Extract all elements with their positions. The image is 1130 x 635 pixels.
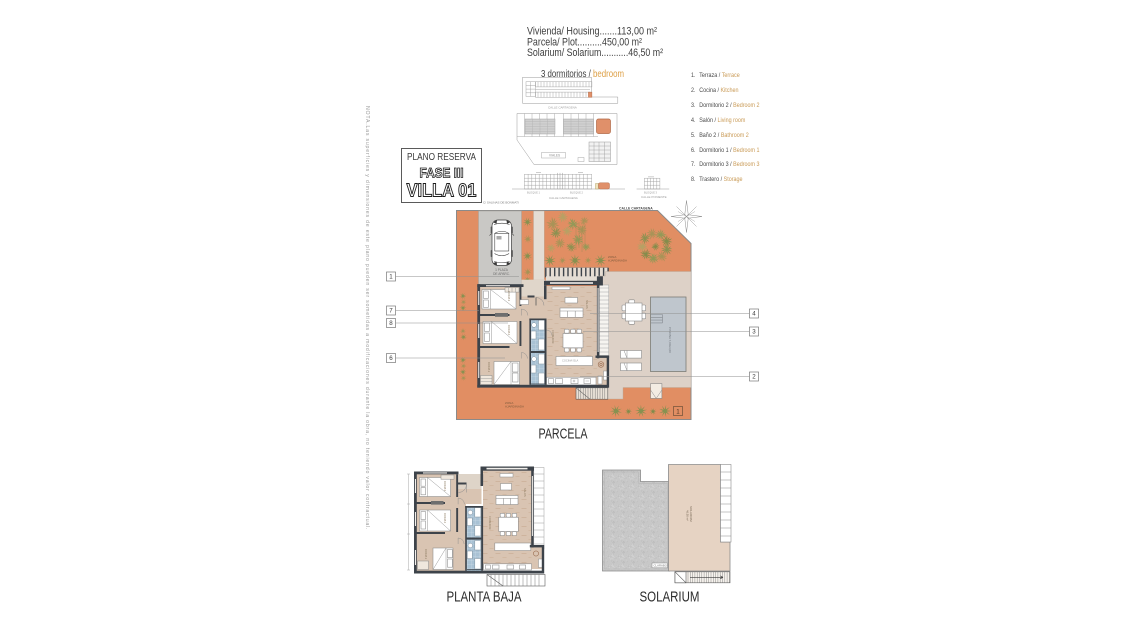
svg-text:VILLA 01: VILLA 01 (407, 180, 477, 201)
svg-text:Cocina / Kitchen: Cocina / Kitchen (699, 88, 738, 95)
svg-text:7.: 7. (691, 162, 696, 169)
svg-text:C/ SALINAS DE BONMATI: C/ SALINAS DE BONMATI (483, 201, 519, 205)
svg-text:1: 1 (389, 274, 393, 281)
svg-text:3.: 3. (691, 103, 696, 110)
svg-text:DE APARC.: DE APARC. (493, 272, 510, 276)
svg-text:2: 2 (752, 374, 756, 381)
svg-text:DORM.3: DORM.3 (443, 481, 447, 492)
svg-text:PLANO RESERVA: PLANO RESERVA (407, 152, 476, 163)
svg-text:BLOQUE 3: BLOQUE 3 (644, 191, 658, 195)
svg-text:6.: 6. (691, 148, 696, 155)
svg-text:CALLE CARTAGENA: CALLE CARTAGENA (619, 207, 653, 211)
svg-text:CALLE CARTAGENA: CALLE CARTAGENA (549, 196, 578, 200)
svg-text:Dormitorio 3 / Bedroom 3: Dormitorio 3 / Bedroom 3 (699, 162, 760, 169)
svg-text:Trastero / Storage: Trastero / Storage (699, 177, 743, 184)
svg-text:PISCINA 7,00x3,00: PISCINA 7,00x3,00 (668, 327, 672, 353)
svg-text:46,50 m²: 46,50 m² (686, 510, 690, 521)
svg-text:4: 4 (752, 311, 756, 318)
svg-text:BLOQUE 1: BLOQUE 1 (527, 191, 541, 195)
svg-text:6: 6 (389, 355, 393, 362)
svg-text:3: 3 (752, 329, 756, 336)
svg-text:Salón / Living room: Salón / Living room (699, 118, 745, 125)
svg-text:SOLARIUM: SOLARIUM (689, 506, 693, 522)
svg-text:7: 7 (389, 308, 393, 315)
svg-text:NOTA.Las superficies y dimensi: NOTA.Las superficies y dimensiones de es… (364, 106, 370, 530)
svg-text:VIALES: VIALES (549, 154, 560, 158)
svg-text:COMEDOR: COMEDOR (488, 516, 492, 530)
svg-text:Dormitorio 2 / Bedroom 2: Dormitorio 2 / Bedroom 2 (699, 103, 760, 110)
svg-text:DORM.2: DORM.2 (443, 513, 447, 524)
svg-text:PLANTA BAJA: PLANTA BAJA (447, 590, 522, 606)
svg-text:3 dormitorios / bedroom: 3 dormitorios / bedroom (541, 68, 624, 80)
svg-text:Baño 2 / Bathroom 2: Baño 2 / Bathroom 2 (699, 133, 749, 140)
svg-text:AJARDINADA: AJARDINADA (608, 259, 627, 263)
svg-text:8: 8 (389, 320, 393, 327)
svg-text:SOLARIUM: SOLARIUM (640, 590, 700, 606)
svg-text:COCINA ISLA: COCINA ISLA (562, 359, 579, 363)
svg-text:CALLE CARTAGENA: CALLE CARTAGENA (548, 106, 577, 110)
svg-text:COMEDOR: COMEDOR (551, 330, 555, 344)
svg-text:Terraza / Terrace: Terraza / Terrace (699, 73, 740, 80)
svg-text:CLARABOYA: CLARABOYA (654, 564, 671, 568)
svg-text:PARCELA: PARCELA (539, 427, 588, 443)
svg-text:AJARDINADA: AJARDINADA (505, 405, 524, 409)
svg-text:DORM.3: DORM.3 (507, 291, 511, 302)
svg-text:FASE III: FASE III (420, 166, 464, 181)
svg-text:DORM.2: DORM.2 (507, 325, 511, 336)
svg-text:BLOQUE 2: BLOQUE 2 (570, 191, 584, 195)
svg-text:SALON: SALON (523, 488, 527, 497)
svg-text:CALLE PONIENTE: CALLE PONIENTE (641, 195, 667, 199)
svg-text:2.: 2. (691, 88, 696, 95)
svg-text:4.: 4. (691, 118, 696, 125)
svg-text:1.: 1. (691, 73, 696, 80)
svg-text:Dormitorio 1 / Bedroom 1: Dormitorio 1 / Bedroom 1 (699, 148, 760, 155)
svg-text:SALON: SALON (585, 300, 589, 309)
svg-text:8.: 8. (691, 177, 696, 184)
svg-text:5.: 5. (691, 133, 696, 140)
svg-text:Solarium/ Solarium...........4: Solarium/ Solarium...........46,50 m² (527, 47, 663, 59)
svg-text:DORM.1: DORM.1 (487, 362, 491, 373)
svg-text:DORM.1: DORM.1 (424, 549, 428, 560)
svg-text:1: 1 (676, 408, 680, 415)
